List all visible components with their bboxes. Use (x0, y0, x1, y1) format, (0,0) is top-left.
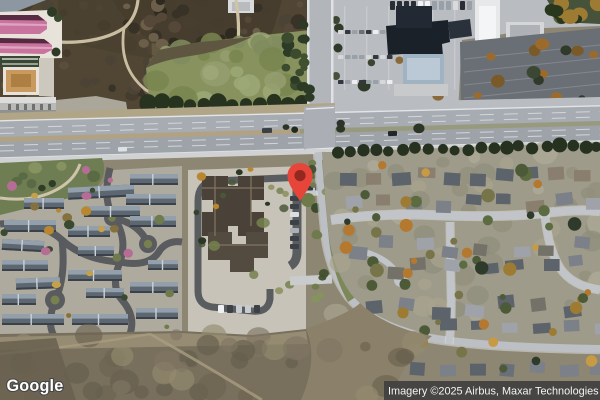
svg-text:Google: Google (7, 377, 64, 395)
svg-text:Imagery ©2025 Airbus, Maxar Te: Imagery ©2025 Airbus, Maxar Technologies (388, 386, 599, 398)
